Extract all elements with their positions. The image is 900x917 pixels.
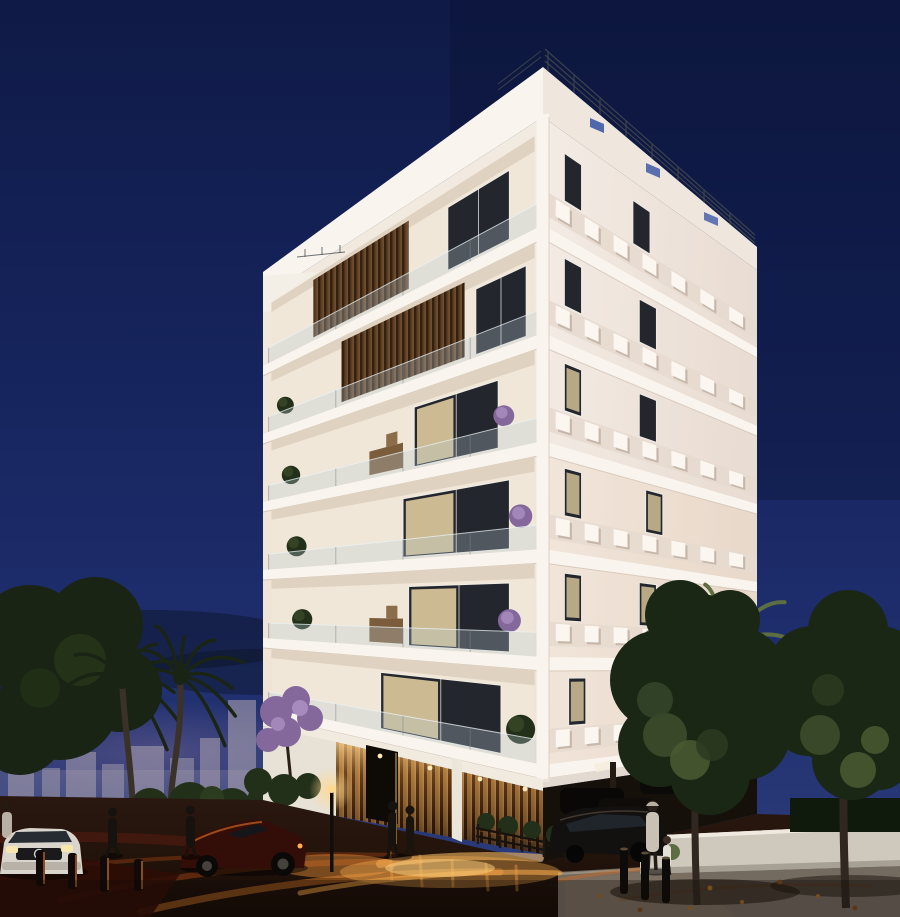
- palm-crown: [115, 675, 129, 689]
- balcony-bush-light: [288, 537, 299, 548]
- lit-window: [567, 368, 580, 413]
- figure-body: [108, 818, 117, 848]
- render-canvas: [0, 0, 900, 917]
- woman-coat: [646, 812, 659, 852]
- purple-blossom-light: [271, 717, 285, 731]
- figure-head: [3, 802, 12, 811]
- figure-body: [388, 812, 397, 846]
- bollard-cap: [620, 848, 628, 851]
- purple-plant-light: [512, 507, 525, 520]
- tree-canopy-light: [637, 682, 673, 718]
- figure-body: [186, 816, 195, 848]
- architectural-night-render: [0, 0, 900, 917]
- lobby-column: [452, 758, 462, 842]
- figure-head: [406, 806, 415, 815]
- lamp-head: [328, 785, 336, 793]
- purple-blossom: [256, 728, 280, 752]
- lit-window: [571, 682, 584, 722]
- figure-head: [388, 801, 398, 811]
- pedestrian-far-left: [2, 802, 12, 839]
- headlight: [6, 846, 18, 853]
- balcony-bush-light: [294, 610, 305, 621]
- child-head: [663, 836, 671, 844]
- perforation-square: [614, 627, 628, 643]
- headlight: [61, 845, 73, 852]
- entrance-light-core: [385, 859, 495, 877]
- lit-window: [648, 494, 661, 532]
- lamp-pole: [330, 792, 334, 872]
- palm-crown: [173, 671, 187, 685]
- balcony-bush-light: [508, 716, 524, 732]
- windshield: [8, 831, 72, 843]
- spotlight: [478, 777, 483, 782]
- spotlight: [378, 754, 383, 759]
- tree-canopy-light: [840, 752, 876, 788]
- bollard-cap: [662, 857, 670, 860]
- tree-foliage-light: [20, 668, 60, 708]
- wheel: [566, 845, 584, 863]
- corner-pilaster: [537, 114, 550, 782]
- perforation-square: [614, 529, 628, 547]
- tree-canopy-light: [812, 674, 844, 706]
- lit-window: [567, 472, 580, 515]
- figure-body: [406, 816, 414, 846]
- perforation-square: [585, 523, 599, 542]
- tree-canopy: [700, 590, 760, 650]
- perforation-square: [556, 518, 570, 538]
- spotlight: [428, 766, 433, 771]
- balcony-chair: [386, 606, 397, 619]
- tree-canopy-light: [800, 715, 840, 755]
- perforation-square: [556, 624, 570, 642]
- car-light: [298, 844, 303, 849]
- purple-blossom-light: [292, 700, 308, 716]
- bollard-cap: [641, 852, 649, 855]
- perforation-square: [671, 541, 685, 558]
- side-window: [564, 258, 581, 314]
- perforation-square: [556, 729, 570, 747]
- balcony-bush-light: [283, 467, 293, 477]
- lit-window: [567, 577, 580, 618]
- purple-plant-light: [496, 407, 508, 419]
- perforation-square: [585, 727, 599, 745]
- wheel-rim: [278, 859, 289, 870]
- spotlight: [523, 787, 528, 792]
- figure-shadow: [181, 854, 201, 860]
- tree-canopy-light: [696, 729, 728, 761]
- perforation-square: [700, 546, 714, 562]
- base-bush: [244, 768, 272, 796]
- figure-head: [108, 808, 117, 817]
- figure-head: [186, 806, 195, 815]
- base-bush: [268, 774, 300, 806]
- wheel-rim: [202, 861, 212, 871]
- side-window: [639, 394, 656, 443]
- balcony-bush-light: [278, 398, 287, 407]
- perforation-square: [643, 535, 657, 553]
- purple-plant-light: [501, 611, 514, 624]
- figure-body: [2, 812, 12, 838]
- perforation-square: [585, 626, 599, 643]
- side-window: [639, 299, 656, 350]
- tree-canopy-light: [861, 726, 889, 754]
- fence-plant: [523, 821, 541, 839]
- bottom-vignette: [0, 880, 900, 917]
